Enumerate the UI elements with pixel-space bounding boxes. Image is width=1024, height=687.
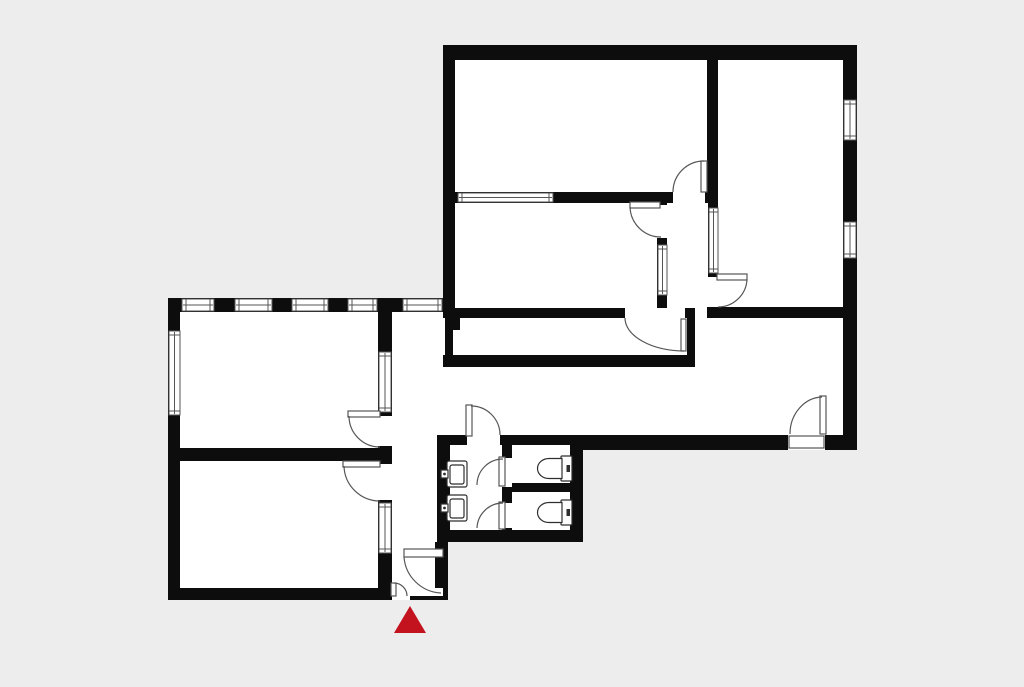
floor-upper-block xyxy=(443,45,857,450)
window xyxy=(458,193,553,202)
window xyxy=(235,299,272,311)
floor-areas xyxy=(168,45,857,600)
window xyxy=(379,352,391,412)
window xyxy=(844,222,856,258)
window xyxy=(182,299,214,311)
floorplan-stage xyxy=(0,0,1024,682)
window xyxy=(169,331,180,415)
floorplan-svg xyxy=(0,0,1024,682)
window xyxy=(379,503,391,553)
window xyxy=(658,245,667,295)
window xyxy=(709,208,718,273)
window xyxy=(403,299,442,311)
toilet-icon xyxy=(538,500,573,525)
entrance-marker xyxy=(394,606,426,633)
window xyxy=(844,100,856,140)
window xyxy=(292,299,328,311)
window xyxy=(348,299,377,311)
toilet-icon xyxy=(538,456,573,481)
